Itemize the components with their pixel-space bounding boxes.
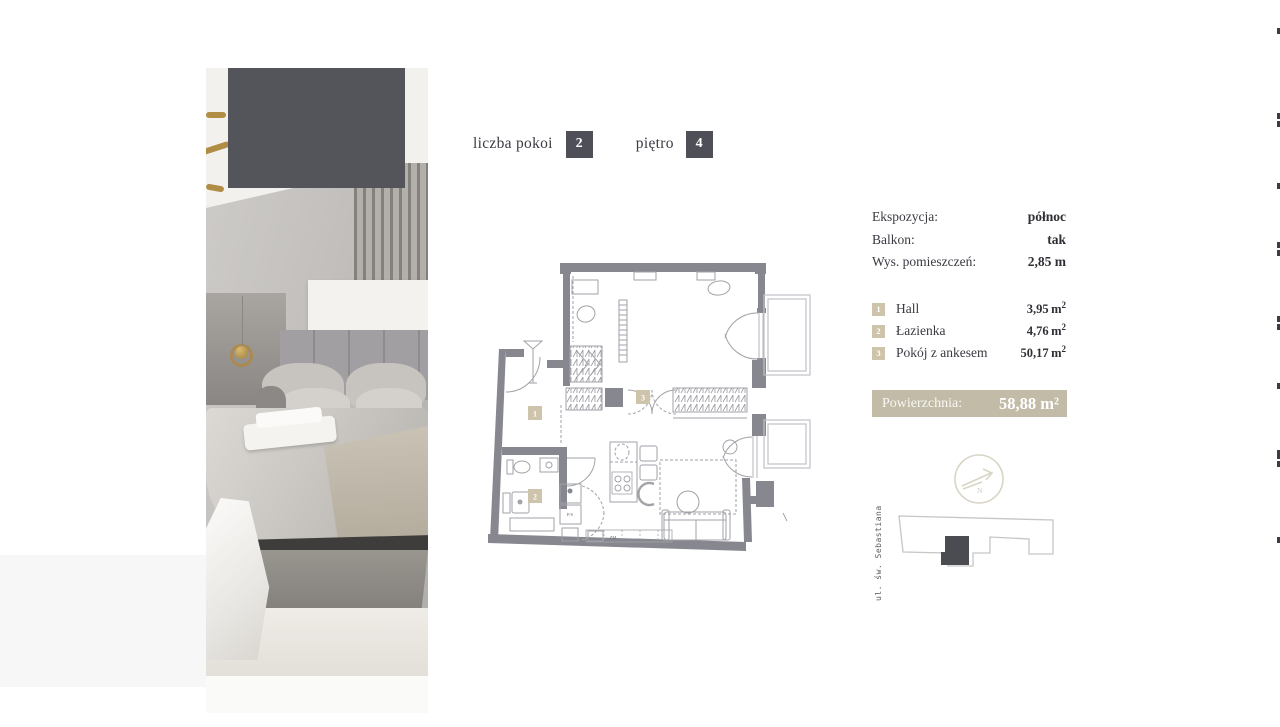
- legend-room-area: 3,95 m2: [1027, 300, 1066, 317]
- plan-ps-text: P/S: [567, 512, 574, 517]
- detail-value: tak: [1047, 232, 1066, 248]
- floor-label: piętro: [636, 135, 674, 153]
- detail-row-balcony: Balkon: tak: [872, 229, 1066, 252]
- building-outline: [899, 516, 1053, 566]
- plan-balconies: [764, 295, 810, 468]
- plan-zm-text: ZM: [610, 535, 617, 540]
- compass-icon: N: [952, 452, 1006, 506]
- legend-room-area: 4,76 m2: [1027, 322, 1066, 339]
- detail-label: Balkon:: [872, 232, 915, 248]
- left-background-band: [0, 555, 207, 687]
- legend-number-badge: 2: [872, 325, 885, 338]
- detail-value: 2,85 m: [1028, 254, 1066, 270]
- legend-row: 3 Pokój z ankesem 50,17 m2: [872, 342, 1066, 364]
- floor-plan: 1 2 3 P/S ZM: [476, 250, 828, 566]
- photo-pendant-cord: [242, 296, 243, 348]
- detail-value: północ: [1028, 209, 1066, 225]
- photo-floor-rug: [206, 676, 428, 713]
- legend-number-badge: 1: [872, 303, 885, 316]
- rooms-count-badge: 2: [566, 131, 593, 158]
- legend-room-name: Hall: [896, 301, 1027, 317]
- detail-label: Wys. pomieszczeń:: [872, 254, 976, 270]
- compass-north-letter: N: [977, 486, 983, 495]
- street-name-label: ul. św. Sebastiana: [874, 511, 888, 601]
- photo-pendant-lamp: [235, 346, 248, 359]
- total-area-value: 58,88 m²: [999, 394, 1059, 414]
- detail-label: Ekspozycja:: [872, 209, 938, 225]
- floor-badge: 4: [686, 131, 713, 158]
- rooms-count-label: liczba pokoi: [473, 135, 553, 153]
- legend-room-area: 50,17 m2: [1020, 344, 1066, 361]
- plan-label-1: 1: [533, 410, 537, 419]
- legend-row: 2 Łazienka 4,76 m2: [872, 320, 1066, 342]
- photo-dark-overlay: [228, 68, 405, 188]
- rooms-legend: 1 Hall 3,95 m2 2 Łazienka 4,76 m2 3 Pokó…: [872, 298, 1066, 364]
- total-area-label: Powierzchnia:: [882, 396, 962, 412]
- apartment-offer-page: liczba pokoi 2 piętro 4: [0, 0, 1280, 727]
- legend-number-badge: 3: [872, 347, 885, 360]
- bedroom-photo: [206, 68, 428, 713]
- legend-room-name: Łazienka: [896, 323, 1027, 339]
- detail-row-height: Wys. pomieszczeń: 2,85 m: [872, 251, 1066, 274]
- total-area-bar: Powierzchnia: 58,88 m²: [872, 390, 1067, 417]
- photo-chandelier-ring: [206, 112, 226, 118]
- plan-header: liczba pokoi 2 piętro 4: [473, 130, 713, 158]
- plan-label-3: 3: [641, 394, 645, 403]
- legend-row: 1 Hall 3,95 m2: [872, 298, 1066, 320]
- detail-row-exposure: Ekspozycja: północ: [872, 206, 1066, 229]
- plan-label-2: 2: [533, 493, 537, 502]
- apartment-location-marker: [941, 536, 969, 565]
- details-panel: Ekspozycja: północ Balkon: tak Wys. pomi…: [872, 206, 1066, 274]
- site-plan: [893, 508, 1073, 586]
- legend-room-name: Pokój z ankesem: [896, 345, 1020, 361]
